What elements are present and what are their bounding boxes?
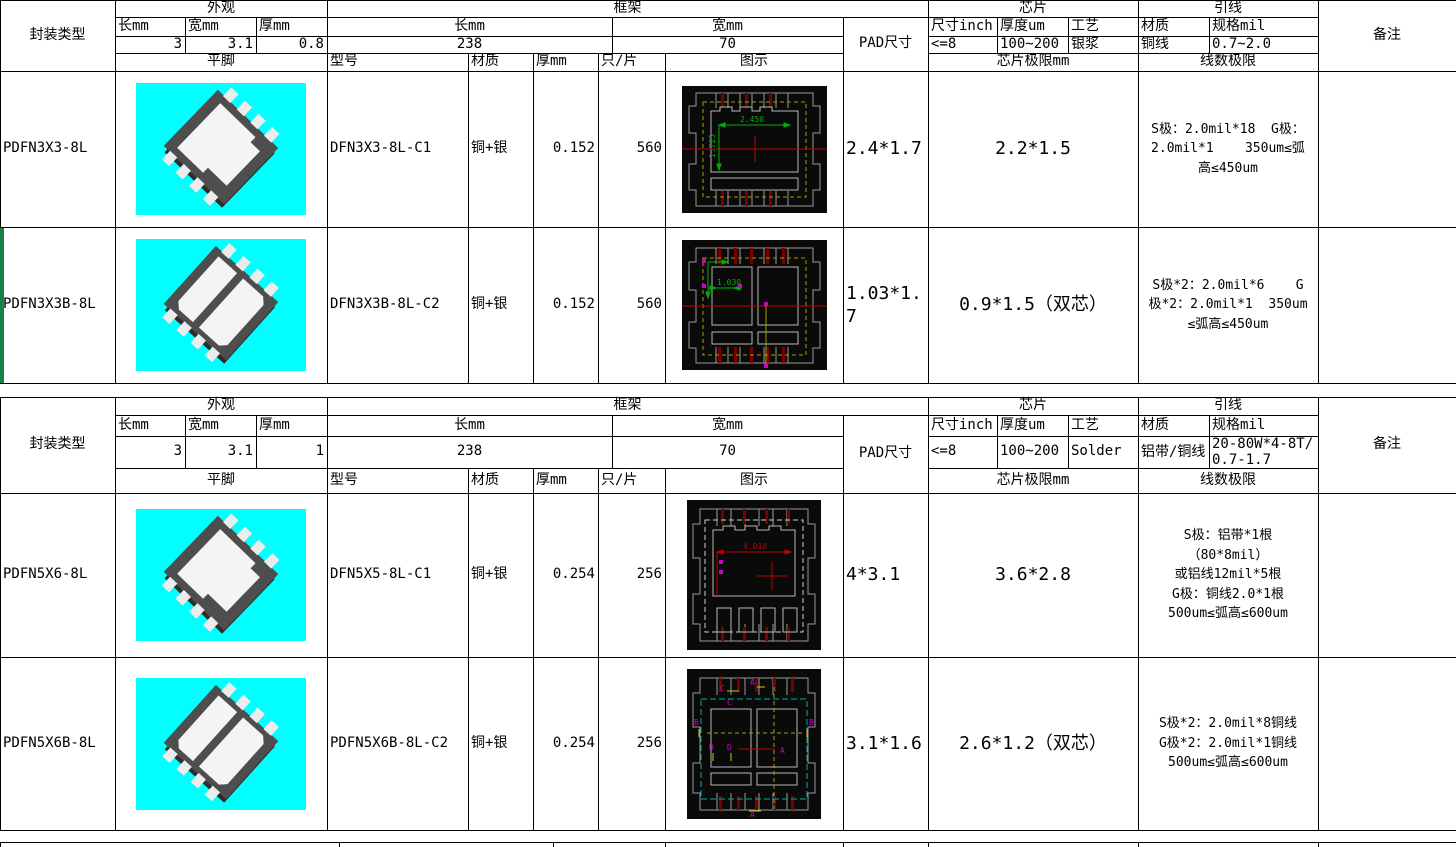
frame-width-value: 70	[612, 436, 843, 468]
frame-width-value: 70	[612, 36, 843, 53]
wire-limit-line: G极*2：2.0mil*1铜线	[1138, 734, 1318, 754]
chip-process-value: Solder	[1068, 436, 1138, 468]
chip-thickness-value: 100~200	[997, 36, 1068, 53]
pad-size-cell: 4*3.1	[843, 493, 928, 657]
frame-width-label: 宽mm	[612, 415, 843, 436]
appearance-thickness-value: 0.8	[256, 36, 327, 53]
frame-diagram: 1.030	[682, 240, 827, 370]
chip-limit-cell: 2.2*1.5	[928, 71, 1138, 227]
wire-limit-cell: S极：铝带*1根 （80*8mil） 或铝线12mil*5根 G极：铜线2.0*…	[1138, 493, 1318, 657]
thickness-cell: 0.152	[533, 227, 598, 383]
chip-size-value: <=8	[928, 436, 997, 468]
package-photo	[136, 239, 306, 371]
appearance-width-value: 3.1	[185, 36, 256, 53]
thickness-cell: 0.254	[533, 493, 598, 657]
chip-limit-cell: 2.6*1.2（双芯）	[928, 657, 1138, 830]
appearance-thickness-label: 厚mm	[256, 17, 327, 36]
material-header: 材质	[468, 53, 533, 71]
thickness-header: 厚mm	[533, 468, 598, 493]
wire-spec-value: 20-80W*4-8T/0.7-1.7	[1209, 436, 1318, 468]
grid-line	[0, 842, 1456, 843]
frame-length-label: 长mm	[327, 17, 612, 36]
chip-size-label: 尺寸inch	[928, 17, 997, 36]
chip-limit-header: 芯片极限mm	[928, 53, 1138, 71]
chip-thickness-label: 厚度um	[997, 415, 1068, 436]
row-highlight	[0, 228, 4, 383]
package-photo	[136, 678, 306, 810]
appearance-width-label: 宽mm	[185, 415, 256, 436]
wire-limit-cell: S极*2：2.0mil*8铜线 G极*2：2.0mil*1铜线 500um≤弧高…	[1138, 657, 1318, 830]
package-name-cell: PDFN3X3B-8L	[0, 227, 115, 383]
chip-limit-cell: 3.6*2.8	[928, 493, 1138, 657]
model-header: 型号	[327, 53, 468, 71]
flat-pin-header: 平脚	[115, 53, 327, 71]
material-header: 材质	[468, 468, 533, 493]
appearance-length-label: 长mm	[115, 17, 185, 36]
wire-limit-line: 高≤450um	[1138, 159, 1318, 179]
grid-line	[0, 383, 1456, 384]
frame-header: 框架	[327, 397, 928, 415]
appearance-length-value: 3	[115, 436, 185, 468]
package-type-header: 封装类型	[0, 0, 115, 71]
chip-process-label: 工艺	[1068, 415, 1138, 436]
wire-limit-line: 或铝线12mil*5根	[1138, 565, 1318, 585]
model-cell: DFN3X3B-8L-C2	[327, 227, 468, 383]
wire-spec-label: 规格mil	[1209, 415, 1318, 436]
pad-size-header: PAD尺寸	[843, 17, 928, 71]
marker-label: A	[780, 746, 785, 755]
pad-size-cell: 3.1*1.6	[843, 657, 928, 830]
wire-limit-cell: S极*2：2.0mil*6 G 极*2：2.0mil*1 350um ≤弧高≤4…	[1138, 227, 1318, 383]
chip-thickness-label: 厚度um	[997, 17, 1068, 36]
wire-header: 引线	[1138, 0, 1318, 17]
flat-pin-header: 平脚	[115, 468, 327, 493]
remark-cell	[1318, 657, 1456, 830]
wire-limit-line: ≤弧高≤450um	[1138, 315, 1318, 335]
marker-label: A	[750, 678, 755, 687]
per-sheet-cell: 560	[598, 71, 665, 227]
thickness-header: 厚mm	[533, 53, 598, 71]
pad-size-header: PAD尺寸	[843, 415, 928, 493]
appearance-header: 外观	[115, 397, 327, 415]
material-cell: 铜+银	[468, 71, 533, 227]
appearance-thickness-value: 1	[256, 436, 327, 468]
chip-thickness-value: 100~200	[997, 436, 1068, 468]
chip-header: 芯片	[928, 0, 1138, 17]
chip-size-label: 尺寸inch	[928, 415, 997, 436]
package-photo	[136, 83, 306, 215]
frame-diagram-cell: 2.450 1.725	[665, 71, 843, 227]
appearance-width-label: 宽mm	[185, 17, 256, 36]
dimension-label: 1.725	[708, 133, 717, 157]
wire-limit-cell: S极：2.0mil*18 G极： 2.0mil*1 350um≤弧 高≤450u…	[1138, 71, 1318, 227]
wire-material-label: 材质	[1138, 17, 1209, 36]
material-cell: 铜+银	[468, 657, 533, 830]
frame-length-value: 238	[327, 436, 612, 468]
remark-cell	[1318, 227, 1456, 383]
per-sheet-cell: 256	[598, 493, 665, 657]
per-sheet-cell: 256	[598, 657, 665, 830]
appearance-thickness-label: 厚mm	[256, 415, 327, 436]
wire-limit-header: 线数极限	[1138, 468, 1318, 493]
marker-label: D	[709, 743, 714, 752]
wire-material-value: 铜线	[1138, 36, 1209, 53]
chip-limit-cell: 0.9*1.5（双芯）	[928, 227, 1138, 383]
appearance-length-label: 长mm	[115, 415, 185, 436]
package-name-cell: PDFN3X3-8L	[0, 71, 115, 227]
wire-limit-line: 极*2：2.0mil*1 350um	[1138, 295, 1318, 315]
package-photo-cell	[115, 657, 327, 830]
wire-limit-line: 500um≤弧高≤600um	[1138, 604, 1318, 624]
per-sheet-header: 只/片	[598, 53, 665, 71]
dimension-label: 4.010	[743, 542, 767, 551]
thickness-cell: 0.152	[533, 71, 598, 227]
frame-header: 框架	[327, 0, 928, 17]
model-cell: PDFN5X6B-8L-C2	[327, 657, 468, 830]
frame-diagram: 4.010	[687, 500, 821, 650]
wire-material-label: 材质	[1138, 415, 1209, 436]
spec-sheet: 封装类型 外观 框架 芯片 引线 备注 长mm 宽mm 厚mm 长mm 宽mm …	[0, 0, 1456, 847]
diagram-header: 图示	[665, 53, 843, 71]
remark-cell	[1318, 71, 1456, 227]
wire-limit-line: 2.0mil*1 350um≤弧	[1138, 139, 1318, 159]
remark-cell	[1318, 493, 1456, 657]
model-cell: DFN5X5-8L-C1	[327, 493, 468, 657]
wire-spec-label: 规格mil	[1209, 17, 1318, 36]
wire-header: 引线	[1138, 397, 1318, 415]
wire-limit-line: G极：铜线2.0*1根	[1138, 585, 1318, 605]
wire-spec-value: 0.7~2.0	[1209, 36, 1318, 53]
remark-header: 备注	[1318, 397, 1456, 493]
per-sheet-cell: 560	[598, 227, 665, 383]
package-photo	[136, 509, 306, 641]
frame-diagram-cell: C A C B B D D A A	[665, 657, 843, 830]
pad-size-cell: 1.03*1.7	[843, 227, 928, 383]
package-name-cell: PDFN5X6-8L	[0, 493, 115, 657]
marker-label: C	[727, 698, 732, 707]
frame-diagram-cell: 1.030	[665, 227, 843, 383]
remark-header: 备注	[1318, 0, 1456, 71]
wire-limit-line: S极：铝带*1根	[1138, 526, 1318, 546]
frame-diagram-cell: 4.010	[665, 493, 843, 657]
model-cell: DFN3X3-8L-C1	[327, 71, 468, 227]
wire-limit-line: 500um≤弧高≤600um	[1138, 753, 1318, 773]
material-cell: 铜+银	[468, 493, 533, 657]
package-type-header: 封装类型	[0, 397, 115, 493]
wire-limit-header: 线数极限	[1138, 53, 1318, 71]
diagram-header: 图示	[665, 468, 843, 493]
frame-length-value: 238	[327, 36, 612, 53]
package-photo-cell	[115, 71, 327, 227]
package-photo-cell	[115, 227, 327, 383]
dimension-label: 1.030	[717, 278, 741, 287]
chip-limit-header: 芯片极限mm	[928, 468, 1138, 493]
marker-label: B	[809, 718, 814, 727]
wire-material-value: 铝带/铜线	[1138, 436, 1209, 468]
pad-size-cell: 2.4*1.7	[843, 71, 928, 227]
wire-limit-line: S极：2.0mil*18 G极：	[1138, 120, 1318, 140]
marker-label: C	[720, 684, 725, 693]
package-name-cell: PDFN5X6B-8L	[0, 657, 115, 830]
wire-limit-line: S极*2：2.0mil*6 G	[1138, 276, 1318, 296]
wire-limit-line: （80*8mil）	[1138, 546, 1318, 566]
thickness-cell: 0.254	[533, 657, 598, 830]
material-cell: 铜+银	[468, 227, 533, 383]
wire-limit-line: S极*2：2.0mil*8铜线	[1138, 714, 1318, 734]
chip-process-label: 工艺	[1068, 17, 1138, 36]
frame-length-label: 长mm	[327, 415, 612, 436]
marker-label: D	[727, 743, 732, 752]
frame-diagram: 2.450 1.725	[682, 86, 827, 213]
marker-label: A	[750, 810, 755, 819]
chip-process-value: 银浆	[1068, 36, 1138, 53]
chip-header: 芯片	[928, 397, 1138, 415]
package-photo-cell	[115, 493, 327, 657]
per-sheet-header: 只/片	[598, 468, 665, 493]
marker-label: B	[694, 718, 699, 727]
appearance-header: 外观	[115, 0, 327, 17]
dimension-label: 2.450	[740, 115, 764, 124]
grid-line	[0, 830, 1456, 831]
frame-width-label: 宽mm	[612, 17, 843, 36]
appearance-width-value: 3.1	[185, 436, 256, 468]
chip-size-value: <=8	[928, 36, 997, 53]
model-header: 型号	[327, 468, 468, 493]
appearance-length-value: 3	[115, 36, 185, 53]
frame-diagram: C A C B B D D A A	[687, 669, 821, 819]
